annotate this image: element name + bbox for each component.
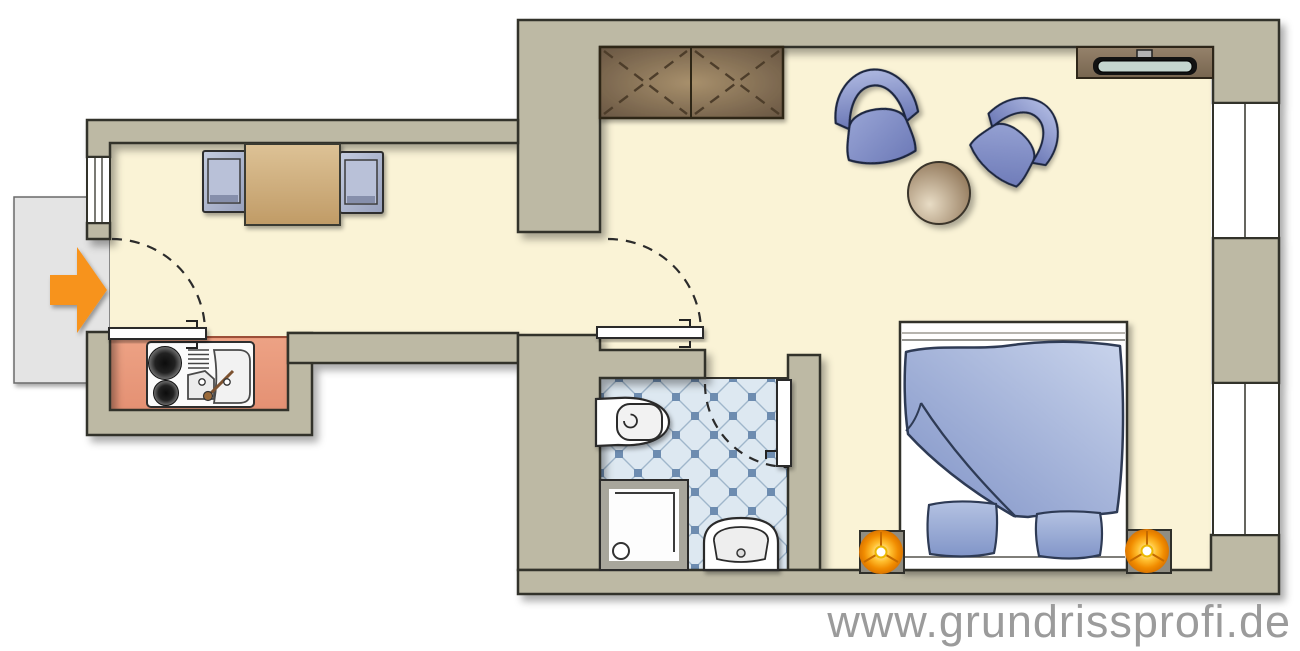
entrance-door-leaf — [109, 328, 206, 339]
coffee-table — [908, 162, 970, 224]
bathroom-door-leaf — [777, 380, 791, 466]
pillow-right — [1036, 511, 1102, 558]
dining-chair-right — [340, 152, 383, 213]
dining-set — [203, 144, 383, 225]
stove-burner-small-icon — [154, 381, 179, 406]
pillow-left — [928, 502, 997, 557]
faucet-handle-icon — [224, 379, 230, 385]
bed — [900, 322, 1127, 570]
faucet-handle-icon — [199, 379, 205, 385]
tv-screen-icon — [1098, 61, 1192, 72]
hall-window — [87, 157, 110, 223]
dining-chair-left — [203, 151, 246, 212]
sink-basin-large-icon — [214, 350, 250, 403]
washbasin-tap-icon — [737, 549, 745, 557]
chair-shadow — [210, 195, 238, 202]
lamp-left-icon — [859, 530, 903, 574]
chair-shadow — [347, 196, 375, 203]
watermark: www.grundrissprofi.de — [826, 596, 1291, 647]
faucet-knob-icon — [204, 392, 213, 401]
living-window-top — [1213, 103, 1279, 238]
living-window-bottom — [1213, 383, 1279, 535]
wardrobe — [600, 47, 783, 118]
wall-entry-pier — [87, 223, 110, 239]
dining-table — [245, 144, 340, 225]
wall-hall-bottom — [288, 333, 518, 363]
kitchenette — [147, 342, 254, 407]
shower-drain-icon — [613, 543, 629, 559]
wall-right-middle — [1213, 238, 1279, 383]
stove-burner-large-icon — [149, 347, 182, 380]
lamp-right-icon — [1125, 529, 1169, 573]
floor-plan-page: www.grundrissprofi.de — [0, 0, 1300, 651]
hall-door-leaf — [597, 327, 703, 338]
passage-floor — [518, 232, 600, 337]
tv-unit — [1077, 47, 1213, 78]
floor-plan: www.grundrissprofi.de — [0, 0, 1300, 651]
wall-bathroom-right — [788, 355, 820, 570]
